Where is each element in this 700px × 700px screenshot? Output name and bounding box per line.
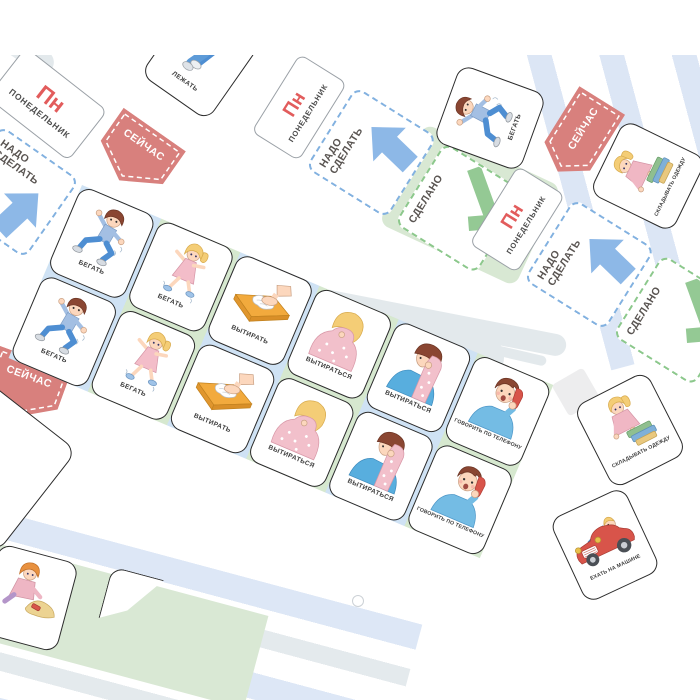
wipe-table-illustration: [180, 347, 271, 434]
sand-play-illustration: [0, 549, 73, 629]
card-lie: ЛЕЖАТЬ: [140, 55, 260, 121]
phone-boy-illustration: [455, 360, 546, 447]
dry-boy-illustration: [339, 414, 430, 501]
up-arrow-icon: [351, 107, 430, 185]
run-boy-illustration: [22, 280, 113, 367]
up-arrow-icon: [0, 172, 58, 252]
photo-area: Пн ПОНЕДЕЛЬНИК НАДО СДЕЛАТЬ ЛЕЖАТЬ СЕЙЧА…: [0, 55, 700, 700]
run-girl-illustration: [101, 314, 192, 401]
car-ride-illustration: [555, 493, 647, 581]
done-label: СДЕЛАНО: [406, 170, 447, 226]
run-girl-illustration: [139, 225, 230, 312]
banner-icon: [88, 108, 186, 202]
hole-punch-mark: [352, 595, 364, 607]
photo-of-visual-schedule-cards: Пн ПОНЕДЕЛЬНИК НАДО СДЕЛАТЬ ЛЕЖАТЬ СЕЙЧА…: [0, 0, 700, 700]
wipe-table-illustration: [218, 259, 309, 346]
run-boy-illustration: [60, 192, 151, 279]
dry-girl-illustration: [260, 381, 351, 468]
done-label: СДЕЛАНО: [624, 282, 665, 338]
phone-boy-illustration: [418, 448, 509, 535]
now-badge: СЕЙЧАС: [88, 108, 186, 202]
card-car: ЕХАТЬ НА МАШИНЕ: [548, 486, 661, 604]
